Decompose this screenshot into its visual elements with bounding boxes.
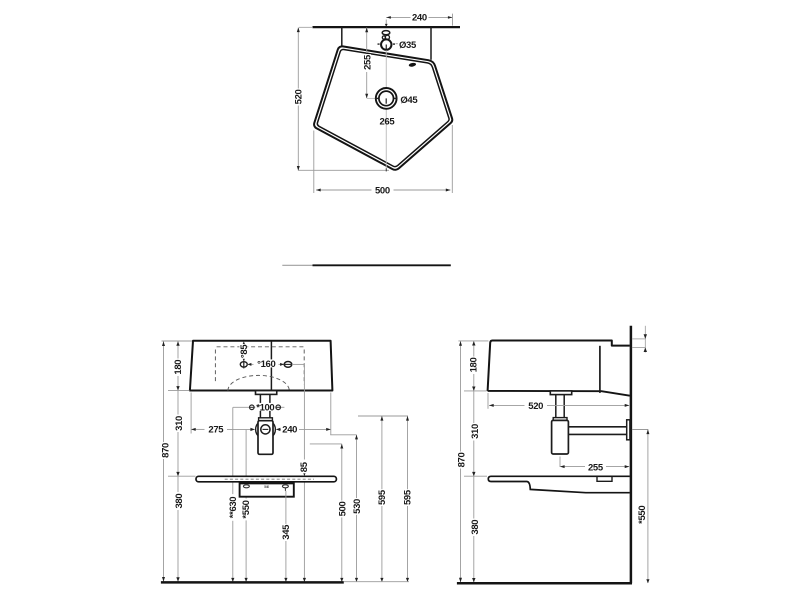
svg-text:870: 870 [161, 443, 172, 458]
svg-text:275: 275 [208, 425, 224, 436]
svg-text:255: 255 [588, 463, 604, 474]
svg-text:265: 265 [379, 117, 395, 128]
svg-text:380: 380 [174, 494, 185, 509]
svg-text:530: 530 [352, 499, 363, 514]
svg-text:180: 180 [469, 358, 480, 373]
svg-text:85: 85 [299, 461, 310, 472]
svg-text:180: 180 [173, 360, 184, 375]
svg-text:595: 595 [403, 489, 414, 505]
svg-text:310: 310 [470, 424, 481, 439]
svg-text:Ø45: Ø45 [400, 95, 418, 106]
svg-text:520: 520 [293, 89, 304, 104]
svg-text:870: 870 [456, 453, 467, 468]
svg-text:595: 595 [377, 489, 388, 505]
svg-text:500: 500 [338, 502, 349, 517]
svg-text:°160: °160 [257, 359, 275, 370]
svg-text:*100: *100 [256, 402, 274, 413]
svg-text:*550: *550 [637, 506, 648, 524]
svg-text:255: 255 [362, 54, 373, 70]
svg-text:345: 345 [281, 524, 292, 540]
svg-text:240: 240 [282, 425, 297, 436]
svg-text:240: 240 [412, 13, 427, 24]
svg-text:310: 310 [174, 416, 185, 431]
svg-text:**630: **630 [228, 497, 239, 519]
svg-text:380: 380 [470, 520, 481, 535]
svg-text:520: 520 [528, 401, 543, 412]
svg-text:Ø35: Ø35 [399, 40, 417, 51]
svg-text:°85: °85 [239, 344, 250, 358]
svg-text:540: 540 [264, 485, 269, 489]
svg-text:500: 500 [375, 186, 390, 197]
svg-text:*550: *550 [241, 500, 252, 518]
